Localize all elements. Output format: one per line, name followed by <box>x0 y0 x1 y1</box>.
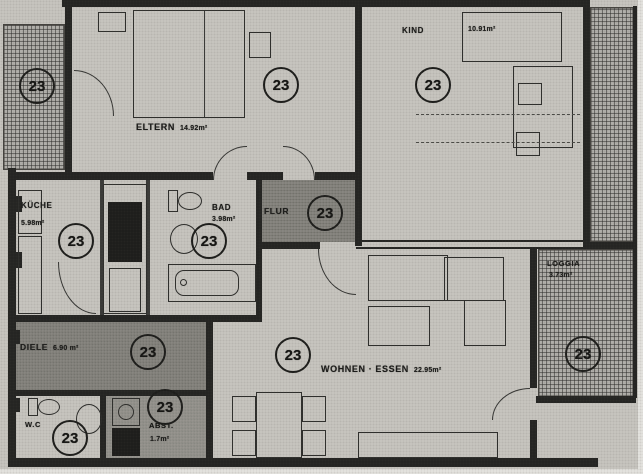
room-area-bad: 3.98m² <box>212 216 235 223</box>
bed-eltern <box>133 10 245 118</box>
wall-wohnen-left <box>206 315 213 458</box>
wall-right-upper <box>583 0 590 249</box>
wall-bottom <box>8 458 598 467</box>
exterior-right-hatch-strip <box>590 7 634 242</box>
room-label-kueche: KÜCHE <box>21 202 52 210</box>
sofa <box>444 257 504 301</box>
wall-band-bottom <box>16 315 262 322</box>
sofa <box>368 255 448 301</box>
room-name: WOHNEN · ESSEN <box>321 365 409 374</box>
chair <box>302 430 326 456</box>
shaft-block <box>108 202 142 262</box>
unit-marker-loggia: 23 <box>565 336 601 372</box>
wall-eltern-kind <box>355 6 362 246</box>
bed-eltern-divider <box>204 11 205 117</box>
toilet-tank <box>168 190 178 212</box>
room-label-eltern: ELTERN 14.92m² <box>136 123 207 132</box>
wall-wohnen-right-a <box>530 249 537 388</box>
washing-machine-door-icon <box>118 404 134 420</box>
unit-marker-bad: 23 <box>191 223 227 259</box>
wall-wohnen-top-a <box>262 242 320 249</box>
toilet-bowl-icon <box>38 399 60 415</box>
unit-marker-wohnen: 23 <box>275 337 311 373</box>
window-wall-kind-wohnen <box>356 240 584 249</box>
door-arc-eltern-balcony <box>74 70 114 116</box>
room-name: DIELE <box>20 343 48 352</box>
room-name: ELTERN <box>136 123 175 132</box>
door-arc-flur-eltern <box>283 146 315 180</box>
room-label-loggia: LOGGIA <box>547 260 580 268</box>
floor-plan: ELTERN 14.92m² KIND 10.91m² KÜCHE 5.98m²… <box>0 0 643 474</box>
wall-pier <box>8 398 20 412</box>
door-arc-wohnen-right <box>492 388 530 420</box>
toilet-bowl-icon <box>178 192 202 210</box>
unit-marker-kueche: 23 <box>58 223 94 259</box>
toilet-tank <box>28 398 38 416</box>
unit-marker-abst: 23 <box>147 389 183 425</box>
wall-wohnen-right-b <box>530 420 537 458</box>
wall-eltern-bottom-a <box>16 172 213 180</box>
chair <box>232 430 256 456</box>
room-label-kind: KIND <box>402 27 424 35</box>
room-label-diele: DIELE 6.90 m² <box>20 343 79 352</box>
unit-marker-wc: 23 <box>52 420 88 456</box>
door-arc-eltern-entry <box>213 146 247 180</box>
door-arc-flur-wohnen <box>318 249 356 295</box>
nightstand <box>98 12 126 32</box>
room-label-wohnen-essen: WOHNEN · ESSEN 22.95m² <box>321 365 441 374</box>
door-arc-kueche-diele <box>58 262 96 314</box>
wall-pier <box>8 330 20 344</box>
wall-loggia-top <box>583 242 636 249</box>
chair <box>516 132 540 156</box>
room-area-loggia: 3.73m² <box>549 272 572 279</box>
room-area-abst: 1.7m² <box>150 436 169 443</box>
unit-marker-eltern: 23 <box>263 67 299 103</box>
kitchen-counter <box>18 190 42 234</box>
armchair <box>464 300 506 346</box>
room-label-bad: BAD <box>212 204 231 212</box>
unit-marker-diele: 23 <box>130 334 166 370</box>
room-area: 6.90 m² <box>53 345 79 352</box>
dashed-guide-line <box>416 142 580 143</box>
unit-marker-flur: 23 <box>307 195 343 231</box>
utility-cabinet <box>109 268 141 312</box>
page-margin-bottom <box>0 469 643 474</box>
room-area: 22.95m² <box>414 367 441 374</box>
sideboard <box>358 432 498 458</box>
nightstand <box>249 32 271 58</box>
wall-bad-right <box>256 180 262 322</box>
storage-block <box>112 428 140 456</box>
kitchen-counter <box>18 236 42 314</box>
wall-wc-abst <box>100 394 106 458</box>
coffee-table <box>368 306 430 346</box>
wall-loggia-bottom <box>536 396 636 403</box>
chair <box>232 396 256 422</box>
wall-eltern-bottom-b <box>247 172 283 180</box>
room-area: 14.92m² <box>180 125 207 132</box>
wall-eltern-bottom-c <box>315 172 360 180</box>
chair <box>302 396 326 422</box>
wall-balcony-eltern <box>65 6 72 172</box>
room-label-flur: FLUR <box>264 207 289 216</box>
page-margin-right <box>638 0 643 474</box>
dashed-guide-line <box>416 114 580 115</box>
wall-outer-right <box>633 6 637 398</box>
drain-icon <box>180 279 187 286</box>
room-area-kind: 10.91m² <box>468 26 495 33</box>
unit-marker-balcony: 23 <box>19 68 55 104</box>
diele-shaded-zone <box>16 322 206 390</box>
unit-marker-kind: 23 <box>415 67 451 103</box>
wall-left <box>8 168 16 465</box>
chair <box>518 83 542 105</box>
dining-table <box>256 392 302 458</box>
room-area-kueche: 5.98m² <box>21 220 44 227</box>
wall-top <box>62 0 590 7</box>
bed-kind <box>462 12 562 62</box>
room-label-wc: W.C <box>25 421 41 429</box>
